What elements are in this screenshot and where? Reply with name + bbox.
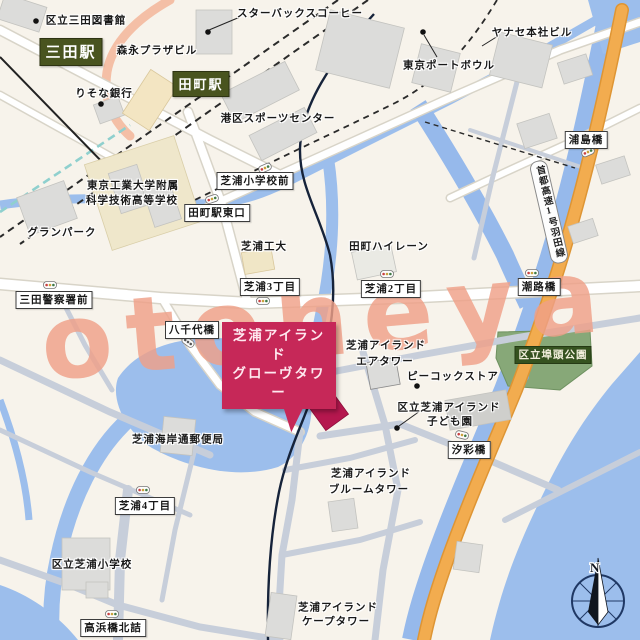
label-shibaura-elementary: 区立芝浦小学校 [52, 557, 133, 572]
label-tech-high-line1: 東京工業大学附属 [87, 178, 179, 193]
label-mita-library: 区立三田図書館 [46, 13, 127, 28]
map-canvas: N otoheya 区立三田図書館 森永プラザビル りそな銀行 スターバックスコ… [0, 0, 640, 640]
road-sign-shioji-bridge: 潮路橋 [518, 278, 561, 296]
label-kodomoen-line2: 子ども園 [427, 414, 473, 429]
compass-north-letter: N [590, 560, 600, 575]
road-sign-tamachi-east-exit: 田町駅東口 [184, 204, 250, 222]
callout-pointer [284, 406, 307, 433]
label-morinaga-plaza: 森永プラザビル [117, 43, 198, 58]
label-air-tower-line2: エアタワー [356, 354, 414, 369]
label-shibaura-kodai: 芝浦工大 [241, 239, 287, 254]
label-peacock-store: ピーコックストア [407, 369, 499, 384]
label-air-tower-line1: 芝浦アイランド [346, 338, 426, 353]
station-badge-tamachi: 田町駅 [172, 71, 229, 97]
road-sign-takahama-bridge-north: 高浜橋北詰 [80, 619, 146, 637]
road-sign-shibaura-2chome: 芝浦2丁目 [361, 280, 421, 298]
callout-line1: 芝浦アイランド [228, 327, 330, 365]
callout-line2: グローヴタワー [228, 365, 330, 403]
label-risona-bank: りそな銀行 [75, 86, 133, 101]
label-post-office: 芝浦海岸通郵便局 [132, 432, 224, 447]
label-granpark: グランパーク [28, 225, 97, 240]
label-cape-tower-line1: 芝浦アイランド [298, 600, 378, 615]
label-tamachi-highlane: 田町ハイレーン [349, 239, 429, 254]
road-sign-mita-police-front: 三田警察署前 [16, 291, 93, 309]
label-starbucks: スターバックスコーヒー [237, 6, 363, 21]
label-bloom-tower-line2: ブルームタワー [329, 482, 409, 497]
callout-grove-tower: 芝浦アイランド グローヴタワー [222, 322, 336, 409]
label-kodomoen-line1: 区立芝浦アイランド [398, 400, 501, 415]
road-sign-shibaura-4chome: 芝浦4丁目 [115, 497, 175, 515]
label-cape-tower-line2: ケープタワー [302, 614, 370, 629]
road-sign-yachiyo-bridge: 八千代橋 [165, 321, 219, 339]
label-bloom-tower-line1: 芝浦アイランド [331, 466, 411, 481]
station-badge-mita: 三田駅 [39, 38, 102, 66]
label-minato-sports-center: 港区スポーツセンター [221, 111, 336, 126]
road-sign-urashima-bridge: 浦島橋 [565, 131, 608, 149]
label-tech-high-line2: 科学技術高等学校 [86, 193, 178, 208]
park-badge-futo-park: 区立埠頭公園 [515, 346, 592, 364]
road-sign-shiosai-bridge: 汐彩橋 [448, 441, 491, 459]
label-yanase-hq: ヤナセ本社ビル [492, 25, 573, 40]
road-sign-shibaura-3chome: 芝浦3丁目 [240, 278, 300, 296]
label-tokyo-port-bowl: 東京ポートボウル [403, 58, 495, 73]
road-sign-shibaura-elem-front: 芝浦小学校前 [217, 172, 294, 190]
